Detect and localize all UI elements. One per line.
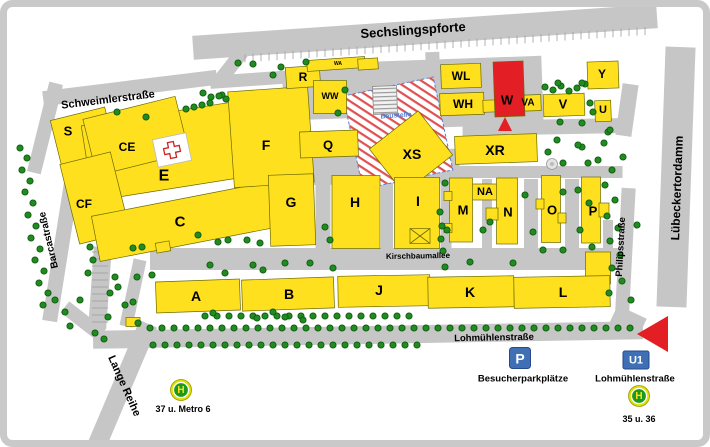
- building-label-P: P: [589, 204, 598, 219]
- tree-icon: [303, 325, 309, 331]
- building-H: [332, 176, 380, 249]
- building-label-WW: WW: [322, 91, 339, 101]
- tree-icon: [282, 342, 288, 348]
- tree-icon: [215, 239, 221, 245]
- tree-icon: [435, 325, 441, 331]
- building-O-stub-l: [536, 199, 544, 209]
- tree-icon: [45, 290, 51, 296]
- tree-icon: [322, 313, 328, 319]
- bus-stop-caption-1: 35 u. 36: [622, 414, 655, 424]
- tree-icon: [560, 160, 566, 166]
- tree-icon: [627, 325, 633, 331]
- tree-icon: [615, 325, 621, 331]
- tree-icon: [531, 325, 537, 331]
- tree-icon: [487, 219, 493, 225]
- tree-icon: [363, 325, 369, 331]
- street-label-kirschbaumallee: Kirschbaumallee: [386, 251, 451, 261]
- tree-icon: [143, 114, 149, 120]
- building-label-C: C: [175, 214, 186, 231]
- tree-icon: [510, 260, 516, 266]
- tree-icon: [159, 325, 165, 331]
- tree-icon: [130, 245, 136, 251]
- building-label-VA: VA: [521, 98, 534, 109]
- bus-stop-letter: H: [177, 385, 184, 396]
- tree-icon: [282, 314, 288, 320]
- tree-icon: [566, 88, 572, 94]
- tree-icon: [219, 325, 225, 331]
- building-label-XR: XR: [485, 142, 504, 158]
- tree-icon: [507, 325, 513, 331]
- tree-icon: [634, 222, 640, 228]
- tree-icon: [306, 342, 312, 348]
- building-label-O: O: [547, 203, 557, 218]
- tree-icon: [105, 314, 111, 320]
- building-small-north-A: [155, 241, 171, 253]
- tree-icon: [222, 270, 228, 276]
- tree-icon: [41, 268, 47, 274]
- tree-icon: [342, 87, 348, 93]
- tree-icon: [423, 325, 429, 331]
- tree-icon: [612, 197, 618, 203]
- building-label-Y: Y: [598, 67, 606, 81]
- tree-icon: [222, 342, 228, 348]
- tree-icon: [442, 264, 448, 270]
- tree-icon: [307, 260, 313, 266]
- tree-icon: [585, 160, 591, 166]
- tree-icon: [414, 342, 420, 348]
- building-O-stub-r: [558, 213, 566, 223]
- tree-icon: [235, 60, 241, 66]
- tree-icon: [149, 272, 155, 278]
- tree-icon: [540, 247, 546, 253]
- tree-icon: [250, 61, 256, 67]
- tree-icon: [607, 238, 613, 244]
- tree-icon: [399, 325, 405, 331]
- building-label-F: F: [262, 137, 271, 153]
- tree-icon: [554, 137, 560, 143]
- tree-icon: [112, 274, 118, 280]
- tree-icon: [607, 127, 613, 133]
- tree-icon: [459, 325, 465, 331]
- tree-icon: [210, 342, 216, 348]
- tree-icon: [267, 325, 273, 331]
- tree-icon: [183, 325, 189, 331]
- tree-icon: [495, 325, 501, 331]
- tree-icon: [243, 325, 249, 331]
- tree-icon: [542, 84, 548, 90]
- building-label-W: W: [501, 93, 514, 108]
- tree-icon: [207, 100, 213, 106]
- tree-icon: [315, 325, 321, 331]
- tree-icon: [555, 80, 561, 86]
- tree-icon: [555, 325, 561, 331]
- tree-icon: [447, 325, 453, 331]
- tree-icon: [619, 278, 625, 284]
- building-label-I: I: [416, 193, 420, 209]
- tree-icon: [483, 325, 489, 331]
- tree-icon: [25, 212, 31, 218]
- tree-icon: [579, 120, 585, 126]
- parking-caption: Besucherparkplätze: [478, 374, 568, 385]
- tree-icon: [602, 182, 608, 188]
- tree-icon: [303, 59, 309, 65]
- tree-icon: [609, 167, 615, 173]
- tree-icon: [207, 262, 213, 268]
- tree-icon: [186, 342, 192, 348]
- building-label-L: L: [559, 284, 568, 300]
- building-label-E: E: [159, 168, 170, 185]
- tree-icon: [207, 325, 213, 331]
- tree-icon: [587, 100, 593, 106]
- tree-icon: [579, 325, 585, 331]
- tree-icon: [402, 342, 408, 348]
- building-label-A: A: [191, 288, 201, 304]
- tree-icon: [85, 270, 91, 276]
- tree-icon: [411, 325, 417, 331]
- building-label-S: S: [64, 124, 73, 139]
- tree-icon: [327, 325, 333, 331]
- tree-icon: [406, 313, 412, 319]
- building-label-G: G: [286, 194, 297, 210]
- building-label-WL: WL: [452, 69, 471, 83]
- tree-icon: [115, 284, 121, 290]
- building-label-M: M: [458, 203, 469, 218]
- bus-stop-caption-0: 37 u. Metro 6: [155, 404, 210, 414]
- tree-icon: [437, 209, 443, 215]
- east-central-road: [458, 166, 623, 178]
- tree-icon: [270, 72, 276, 78]
- building-label-XS: XS: [403, 146, 422, 162]
- tree-icon: [471, 325, 477, 331]
- tree-icon: [370, 313, 376, 319]
- tree-icon: [216, 93, 222, 99]
- tree-icon: [628, 297, 634, 303]
- tree-icon: [270, 309, 276, 315]
- building-J: [338, 275, 431, 308]
- tree-icon: [246, 342, 252, 348]
- tree-icon: [134, 274, 140, 280]
- tree-icon: [567, 325, 573, 331]
- tree-icon: [195, 232, 201, 238]
- building-label-K: K: [465, 284, 475, 300]
- tree-icon: [62, 309, 68, 315]
- street-label-lohmühlenstraße: Lohmühlenstraße: [454, 332, 534, 344]
- tree-icon: [318, 342, 324, 348]
- tree-icon: [67, 323, 73, 329]
- tree-icon: [590, 109, 596, 115]
- tree-icon: [577, 227, 583, 233]
- building-label-WH: WH: [453, 97, 473, 111]
- tree-icon: [198, 342, 204, 348]
- tree-icon: [394, 313, 400, 319]
- tree-icon: [122, 302, 128, 308]
- tree-icon: [130, 299, 136, 305]
- no-corridor: [524, 179, 538, 249]
- tree-icon: [322, 224, 328, 230]
- tree-icon: [557, 119, 563, 125]
- tree-icon: [195, 325, 201, 331]
- tree-icon: [234, 342, 240, 348]
- tree-icon: [579, 80, 585, 86]
- tree-icon: [202, 313, 208, 319]
- tree-icon: [139, 244, 145, 250]
- tree-icon: [255, 325, 261, 331]
- tree-icon: [101, 336, 107, 342]
- tree-icon: [27, 178, 33, 184]
- tree-icon: [574, 85, 580, 91]
- tree-icon: [260, 267, 266, 273]
- tree-icon: [354, 342, 360, 348]
- tree-icon: [258, 342, 264, 348]
- tree-icon: [603, 325, 609, 331]
- ubahn-sign-letter: U1: [629, 355, 643, 367]
- tree-icon: [282, 260, 288, 266]
- tree-icon: [262, 313, 268, 319]
- tree-icon: [339, 325, 345, 331]
- tree-icon: [327, 237, 333, 243]
- tree-icon: [77, 297, 83, 303]
- tree-icon: [270, 342, 276, 348]
- tree-icon: [257, 240, 263, 246]
- tree-icon: [351, 325, 357, 331]
- tree-icon: [238, 313, 244, 319]
- tree-icon: [543, 325, 549, 331]
- building-label-CF: CF: [76, 197, 92, 211]
- tree-icon: [375, 325, 381, 331]
- tree-icon: [114, 109, 120, 115]
- fountain-center: [550, 162, 554, 166]
- tree-icon: [30, 200, 36, 206]
- tree-icon: [107, 290, 113, 296]
- tree-icon: [522, 192, 528, 198]
- tree-icon: [40, 302, 46, 308]
- building-label-CE: CE: [119, 140, 136, 154]
- tree-icon: [342, 342, 348, 348]
- tree-icon: [183, 106, 189, 112]
- building-label-V: V: [559, 97, 568, 112]
- hi-corridor: [381, 178, 393, 251]
- tree-icon: [358, 313, 364, 319]
- tree-icon: [382, 313, 388, 319]
- tree-icon: [90, 257, 96, 263]
- tree-icon: [550, 87, 556, 93]
- campus-map-svg: SechslingspforteSchweimlerstraßeBarcastr…: [0, 0, 710, 447]
- tree-icon: [589, 244, 595, 250]
- tree-icon: [22, 189, 28, 195]
- tree-icon: [17, 145, 23, 151]
- tree-icon: [37, 246, 43, 252]
- building-label-J: J: [375, 282, 383, 298]
- tree-icon: [226, 313, 232, 319]
- building-M-stub1: [444, 192, 452, 201]
- ubahn-caption: Lohmühlenstraße: [595, 374, 675, 385]
- tree-icon: [480, 227, 486, 233]
- tree-icon: [223, 96, 229, 102]
- tree-icon: [439, 223, 445, 229]
- tree-icon: [278, 64, 284, 70]
- tree-icon: [210, 310, 216, 316]
- tree-icon: [387, 325, 393, 331]
- tree-icon: [87, 244, 93, 250]
- building-G: [268, 174, 315, 247]
- tree-icon: [135, 320, 141, 326]
- tree-icon: [291, 325, 297, 331]
- building-W: [493, 61, 525, 117]
- building-WA2: [358, 58, 379, 70]
- tree-icon: [442, 180, 448, 186]
- tree-icon: [575, 142, 581, 148]
- tree-icon: [545, 149, 551, 155]
- building-label-B: B: [284, 286, 294, 302]
- tree-icon: [346, 313, 352, 319]
- tree-icon: [52, 297, 58, 303]
- tree-icon: [467, 259, 473, 265]
- building-label-N: N: [503, 205, 512, 220]
- tree-icon: [334, 313, 340, 319]
- campus-map: SechslingspforteSchweimlerstraßeBarcastr…: [0, 0, 710, 447]
- tree-icon: [92, 330, 98, 336]
- tree-icon: [294, 342, 300, 348]
- tree-icon: [575, 187, 581, 193]
- building-label-R: R: [299, 70, 308, 84]
- tree-icon: [147, 325, 153, 331]
- tree-icon: [150, 342, 156, 348]
- building-N-stub: [486, 208, 498, 220]
- tree-icon: [279, 325, 285, 331]
- tree-icon: [300, 317, 306, 323]
- construction-building: [373, 86, 398, 115]
- tree-icon: [335, 110, 341, 116]
- tree-icon: [601, 140, 607, 146]
- tree-icon: [231, 325, 237, 331]
- tree-icon: [330, 342, 336, 348]
- tree-icon: [28, 235, 34, 241]
- tree-icon: [19, 167, 25, 173]
- tree-icon: [171, 325, 177, 331]
- tree-icon: [560, 247, 566, 253]
- tree-icon: [620, 154, 626, 160]
- tree-icon: [208, 94, 214, 100]
- building-label-U: U: [599, 104, 607, 116]
- tree-icon: [595, 157, 601, 163]
- tree-icon: [244, 237, 250, 243]
- tree-icon: [250, 262, 256, 268]
- tree-icon: [200, 90, 206, 96]
- tree-icon: [604, 213, 610, 219]
- tree-icon: [162, 342, 168, 348]
- tree-icon: [33, 223, 39, 229]
- tree-icon: [174, 342, 180, 348]
- tree-icon: [310, 313, 316, 319]
- parking-sign-letter: P: [515, 351, 524, 367]
- tree-icon: [519, 325, 525, 331]
- building-label-H: H: [350, 194, 360, 210]
- tree-icon: [390, 342, 396, 348]
- tree-icon: [530, 229, 536, 235]
- tree-icon: [438, 236, 444, 242]
- tree-icon: [32, 257, 38, 263]
- tree-icon: [225, 237, 231, 243]
- tree-icon: [254, 315, 260, 321]
- tree-icon: [378, 342, 384, 348]
- building-label-NA: NA: [477, 186, 493, 198]
- building-label-Q: Q: [323, 138, 333, 153]
- tree-icon: [330, 265, 336, 271]
- tree-icon: [560, 189, 566, 195]
- tree-icon: [36, 280, 42, 286]
- tree-icon: [366, 342, 372, 348]
- tree-icon: [591, 325, 597, 331]
- tree-icon: [24, 155, 30, 161]
- tree-icon: [191, 104, 197, 110]
- tree-icon: [199, 102, 205, 108]
- building-label-WA: WA: [334, 61, 342, 67]
- bus-stop-letter: H: [635, 391, 642, 402]
- tree-icon: [606, 290, 612, 296]
